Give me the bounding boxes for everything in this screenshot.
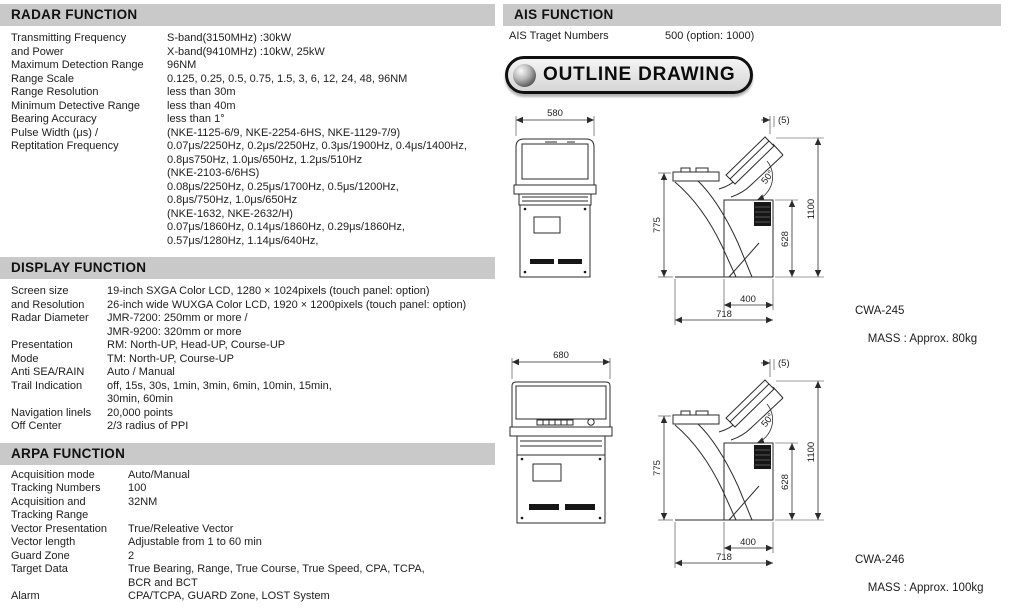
spec-row: Range Scale0.125, 0.25, 0.5, 0.75, 1.5, … [11,73,495,87]
spec-row: Acquisition modeAuto/Manual [11,469,495,483]
spec-label: and Resolution [11,299,107,313]
spec-value: True Bearing, Range, True Course, True S… [128,563,425,577]
dim-top-clearance: (5) [778,358,790,369]
spec-row: Trail Indicationoff, 15s, 30s, 1min, 3mi… [11,380,495,394]
spec-label [11,235,167,249]
spec-label: Reptitation Frequency [11,140,167,154]
spec-label: Mode [11,353,107,367]
spec-row: 0.8μs/750Hz, 1.0μs/650Hz [11,194,495,208]
spec-row: 0.07μs/1860Hz, 0.14μs/1860Hz, 0.29μs/186… [11,221,495,235]
spec-value: less than 1° [167,113,225,127]
ais-function-rows: AIS Traget Numbers500 (option: 1000) [503,30,996,44]
spec-row: Range Resolutionless than 30m [11,86,495,100]
dim-monitor-tilt: 50° [759,411,777,429]
spec-row: BCR and BCT [11,577,495,591]
spec-label: Screen size [11,285,107,299]
spec-value: 0.07μs/1860Hz, 0.14μs/1860Hz, 0.29μs/186… [167,221,405,235]
spec-value: S-band(3150MHz) :30kW [167,32,291,46]
dim-top-clearance: (5) [778,115,790,126]
spec-label: Range Resolution [11,86,167,100]
spec-label: Vector Presentation [11,523,128,537]
spec-row: 0.57μs/1280Hz, 1.14μs/640Hz, [11,235,495,249]
spec-row: 0.08μs/2250Hz, 0.25μs/1700Hz, 0.5μs/1200… [11,181,495,195]
spec-label: Target Data [11,563,128,577]
model-mass: MASS : Approx. 80kg [868,333,977,345]
dim-cabinet-height: 628 [780,474,791,490]
dim-deck-height: 775 [652,217,663,233]
spec-label: Alarm [11,590,128,604]
spec-label: Presentation [11,339,107,353]
spec-value: X-band(9410MHz) :10kW, 25kW [167,46,325,60]
radar-function-header: RADAR FUNCTION [0,4,495,26]
spec-row: (NKE-2103-6/6HS) [11,167,495,181]
spec-label: Maximum Detection Range [11,59,167,73]
spec-value: 26-inch wide WUXGA Color LCD, 1920 × 120… [107,299,466,313]
spec-value: 0.8μs750Hz, 1.0μs/650Hz, 1.2μs/510Hz [167,154,362,168]
spec-value: 100 [128,482,146,496]
spec-value: TM: North-UP, Course-UP [107,353,234,367]
spec-label: Tracking Range [11,509,128,523]
sphere-bullet-icon [513,64,536,87]
display-function-header: DISPLAY FUNCTION [0,257,495,279]
spec-value: Adjustable from 1 to 60 min [128,536,262,550]
spec-row: Radar DiameterJMR-7200: 250mm or more / [11,312,495,326]
spec-value: (NKE-1125-6/9, NKE-2254-6HS, NKE-1129-7/… [167,127,400,141]
dim-overall-height: 1100 [806,442,817,462]
spec-row: PresentationRM: North-UP, Head-UP, Cours… [11,339,495,353]
spec-row: and Resolution26-inch wide WUXGA Color L… [11,299,495,313]
spec-value: 2/3 radius of PPI [107,420,188,434]
spec-row: Vector lengthAdjustable from 1 to 60 min [11,536,495,550]
spec-label [11,167,167,181]
spec-row: Guard Zone2 [11,550,495,564]
spec-value: CPA/TCPA, GUARD Zone, LOST System [128,590,330,604]
spec-label [11,181,167,195]
spec-value: 30min, 60min [107,393,173,407]
spec-label: Range Scale [11,73,167,87]
spec-value: (NKE-2103-6/6HS) [167,167,259,181]
spec-row: AlarmCPA/TCPA, GUARD Zone, LOST System [11,590,495,604]
spec-value: RM: North-UP, Head-UP, Course-UP [107,339,285,353]
spec-label: Transmitting Frequency [11,32,167,46]
model-number: CWA-246 [855,553,983,567]
spec-row: Anti SEA/RAINAuto / Manual [11,366,495,380]
spec-value: less than 40m [167,100,235,114]
dim-monitor-tilt: 50° [759,168,777,186]
radar-function-rows: Transmitting FrequencyS-band(3150MHz) :3… [0,32,495,248]
spec-label: Navigation linels [11,407,107,421]
spec-row: Pulse Width (μs) /(NKE-1125-6/9, NKE-225… [11,127,495,141]
spec-label: Tracking Numbers [11,482,128,496]
spec-value: 19-inch SXGA Color LCD, 1280 × 1024pixel… [107,285,430,299]
spec-label [11,577,128,591]
spec-row: Tracking Numbers100 [11,482,495,496]
outline-drawing-badge-label: OUTLINE DRAWING [543,64,736,86]
cwa245-front-view: 580 [514,108,596,277]
model-mass: MASS : Approx. 100kg [868,582,984,594]
spec-row: 30min, 60min [11,393,495,407]
spec-row: Maximum Detection Range96NM [11,59,495,73]
dim-overall-height: 1100 [806,199,817,219]
spec-value: 0.8μs/750Hz, 1.0μs/650Hz [167,194,297,208]
spec-value: 0.07μs/2250Hz, 0.2μs/2250Hz, 0.3μs/1900H… [167,140,467,154]
spec-value: Auto / Manual [107,366,175,380]
spec-label [11,154,167,168]
dim-cabinet-height: 628 [780,231,791,247]
spec-label: Trail Indication [11,380,107,394]
dim-front-width: 680 [553,350,569,361]
spec-value: 96NM [167,59,196,73]
spec-row: Minimum Detective Rangeless than 40m [11,100,495,114]
cwa246-front-view: 680 [510,350,612,523]
spec-row: Off Center2/3 radius of PPI [11,420,495,434]
dim-front-width: 580 [547,108,563,119]
spec-value: BCR and BCT [128,577,198,591]
cwa246-model-label: CWA-246 MASS : Approx. 100kg [855,525,983,609]
spec-label [11,326,107,340]
spec-label: Anti SEA/RAIN [11,366,107,380]
spec-row: Transmitting FrequencyS-band(3150MHz) :3… [11,32,495,46]
spec-row: JMR-9200: 320mm or more [11,326,495,340]
spec-row: Screen size19-inch SXGA Color LCD, 1280 … [11,285,495,299]
spec-row: and PowerX-band(9410MHz) :10kW, 25kW [11,46,495,60]
dim-overall-depth: 718 [716,309,732,320]
spec-value: JMR-9200: 320mm or more [107,326,242,340]
spec-label [11,393,107,407]
display-function-rows: Screen size19-inch SXGA Color LCD, 1280 … [0,285,495,434]
spec-row: Acquisition and32NM [11,496,495,510]
spec-label: Pulse Width (μs) / [11,127,167,141]
spec-value: 500 (option: 1000) [665,30,754,44]
spec-value: 20,000 points [107,407,173,421]
dim-cabinet-depth: 400 [740,537,756,548]
spec-label: Acquisition and [11,496,128,510]
spec-label: Minimum Detective Range [11,100,167,114]
spec-value: (NKE-1632, NKE-2632/H) [167,208,293,222]
dim-overall-depth: 718 [716,552,732,563]
spec-value: 0.125, 0.25, 0.5, 0.75, 1.5, 3, 6, 12, 2… [167,73,407,87]
spec-row: 0.8μs750Hz, 1.0μs/650Hz, 1.2μs/510Hz [11,154,495,168]
spec-row: Bearing Accuracyless than 1° [11,113,495,127]
spec-row: Vector PresentationTrue/Releative Vector [11,523,495,537]
spec-column-left: RADAR FUNCTION Transmitting FrequencyS-b… [0,4,495,604]
spec-value: less than 30m [167,86,235,100]
spec-label: Bearing Accuracy [11,113,167,127]
spec-value: True/Releative Vector [128,523,233,537]
spec-label [11,208,167,222]
spec-label [11,221,167,235]
dim-cabinet-depth: 400 [740,294,756,305]
spec-label: Vector length [11,536,128,550]
spec-label: and Power [11,46,167,60]
outline-drawing-cwa246: 680 [505,346,1010,604]
spec-row: ModeTM: North-UP, Course-UP [11,353,495,367]
arpa-function-rows: Acquisition modeAuto/ManualTracking Numb… [0,469,495,604]
model-number: CWA-245 [855,304,977,318]
spec-value: 0.08μs/2250Hz, 0.25μs/1700Hz, 0.5μs/1200… [167,181,399,195]
spec-row: Reptitation Frequency0.07μs/2250Hz, 0.2μ… [11,140,495,154]
spec-row: Target DataTrue Bearing, Range, True Cou… [11,563,495,577]
spec-value: 2 [128,550,134,564]
spec-row: Navigation linels20,000 points [11,407,495,421]
spec-value: off, 15s, 30s, 1min, 3min, 6min, 10min, … [107,380,332,394]
spec-value: 0.57μs/1280Hz, 1.14μs/640Hz, [167,235,319,249]
ais-function-header: AIS FUNCTION [503,4,1001,26]
cwa245-side-view: 50° (5) 775 628 1100 400 718 [652,115,824,325]
spec-label [11,194,167,208]
spec-value: 32NM [128,496,157,510]
spec-row: (NKE-1632, NKE-2632/H) [11,208,495,222]
spec-label: Off Center [11,420,107,434]
spec-row: Tracking Range [11,509,495,523]
spec-label: Acquisition mode [11,469,128,483]
spec-label: Radar Diameter [11,312,107,326]
spec-row: AIS Traget Numbers500 (option: 1000) [509,30,996,44]
spec-value: JMR-7200: 250mm or more / [107,312,248,326]
dim-deck-height: 775 [652,460,663,476]
cwa246-side-view: 50° (5) 775 628 1100 400 718 [652,358,824,568]
spec-value: Auto/Manual [128,469,190,483]
spec-label: Guard Zone [11,550,128,564]
outline-drawing-badge: OUTLINE DRAWING [505,56,753,94]
spec-label: AIS Traget Numbers [509,30,665,44]
outline-drawing-cwa245: 580 [505,103,1010,346]
arpa-function-header: ARPA FUNCTION [0,443,495,465]
